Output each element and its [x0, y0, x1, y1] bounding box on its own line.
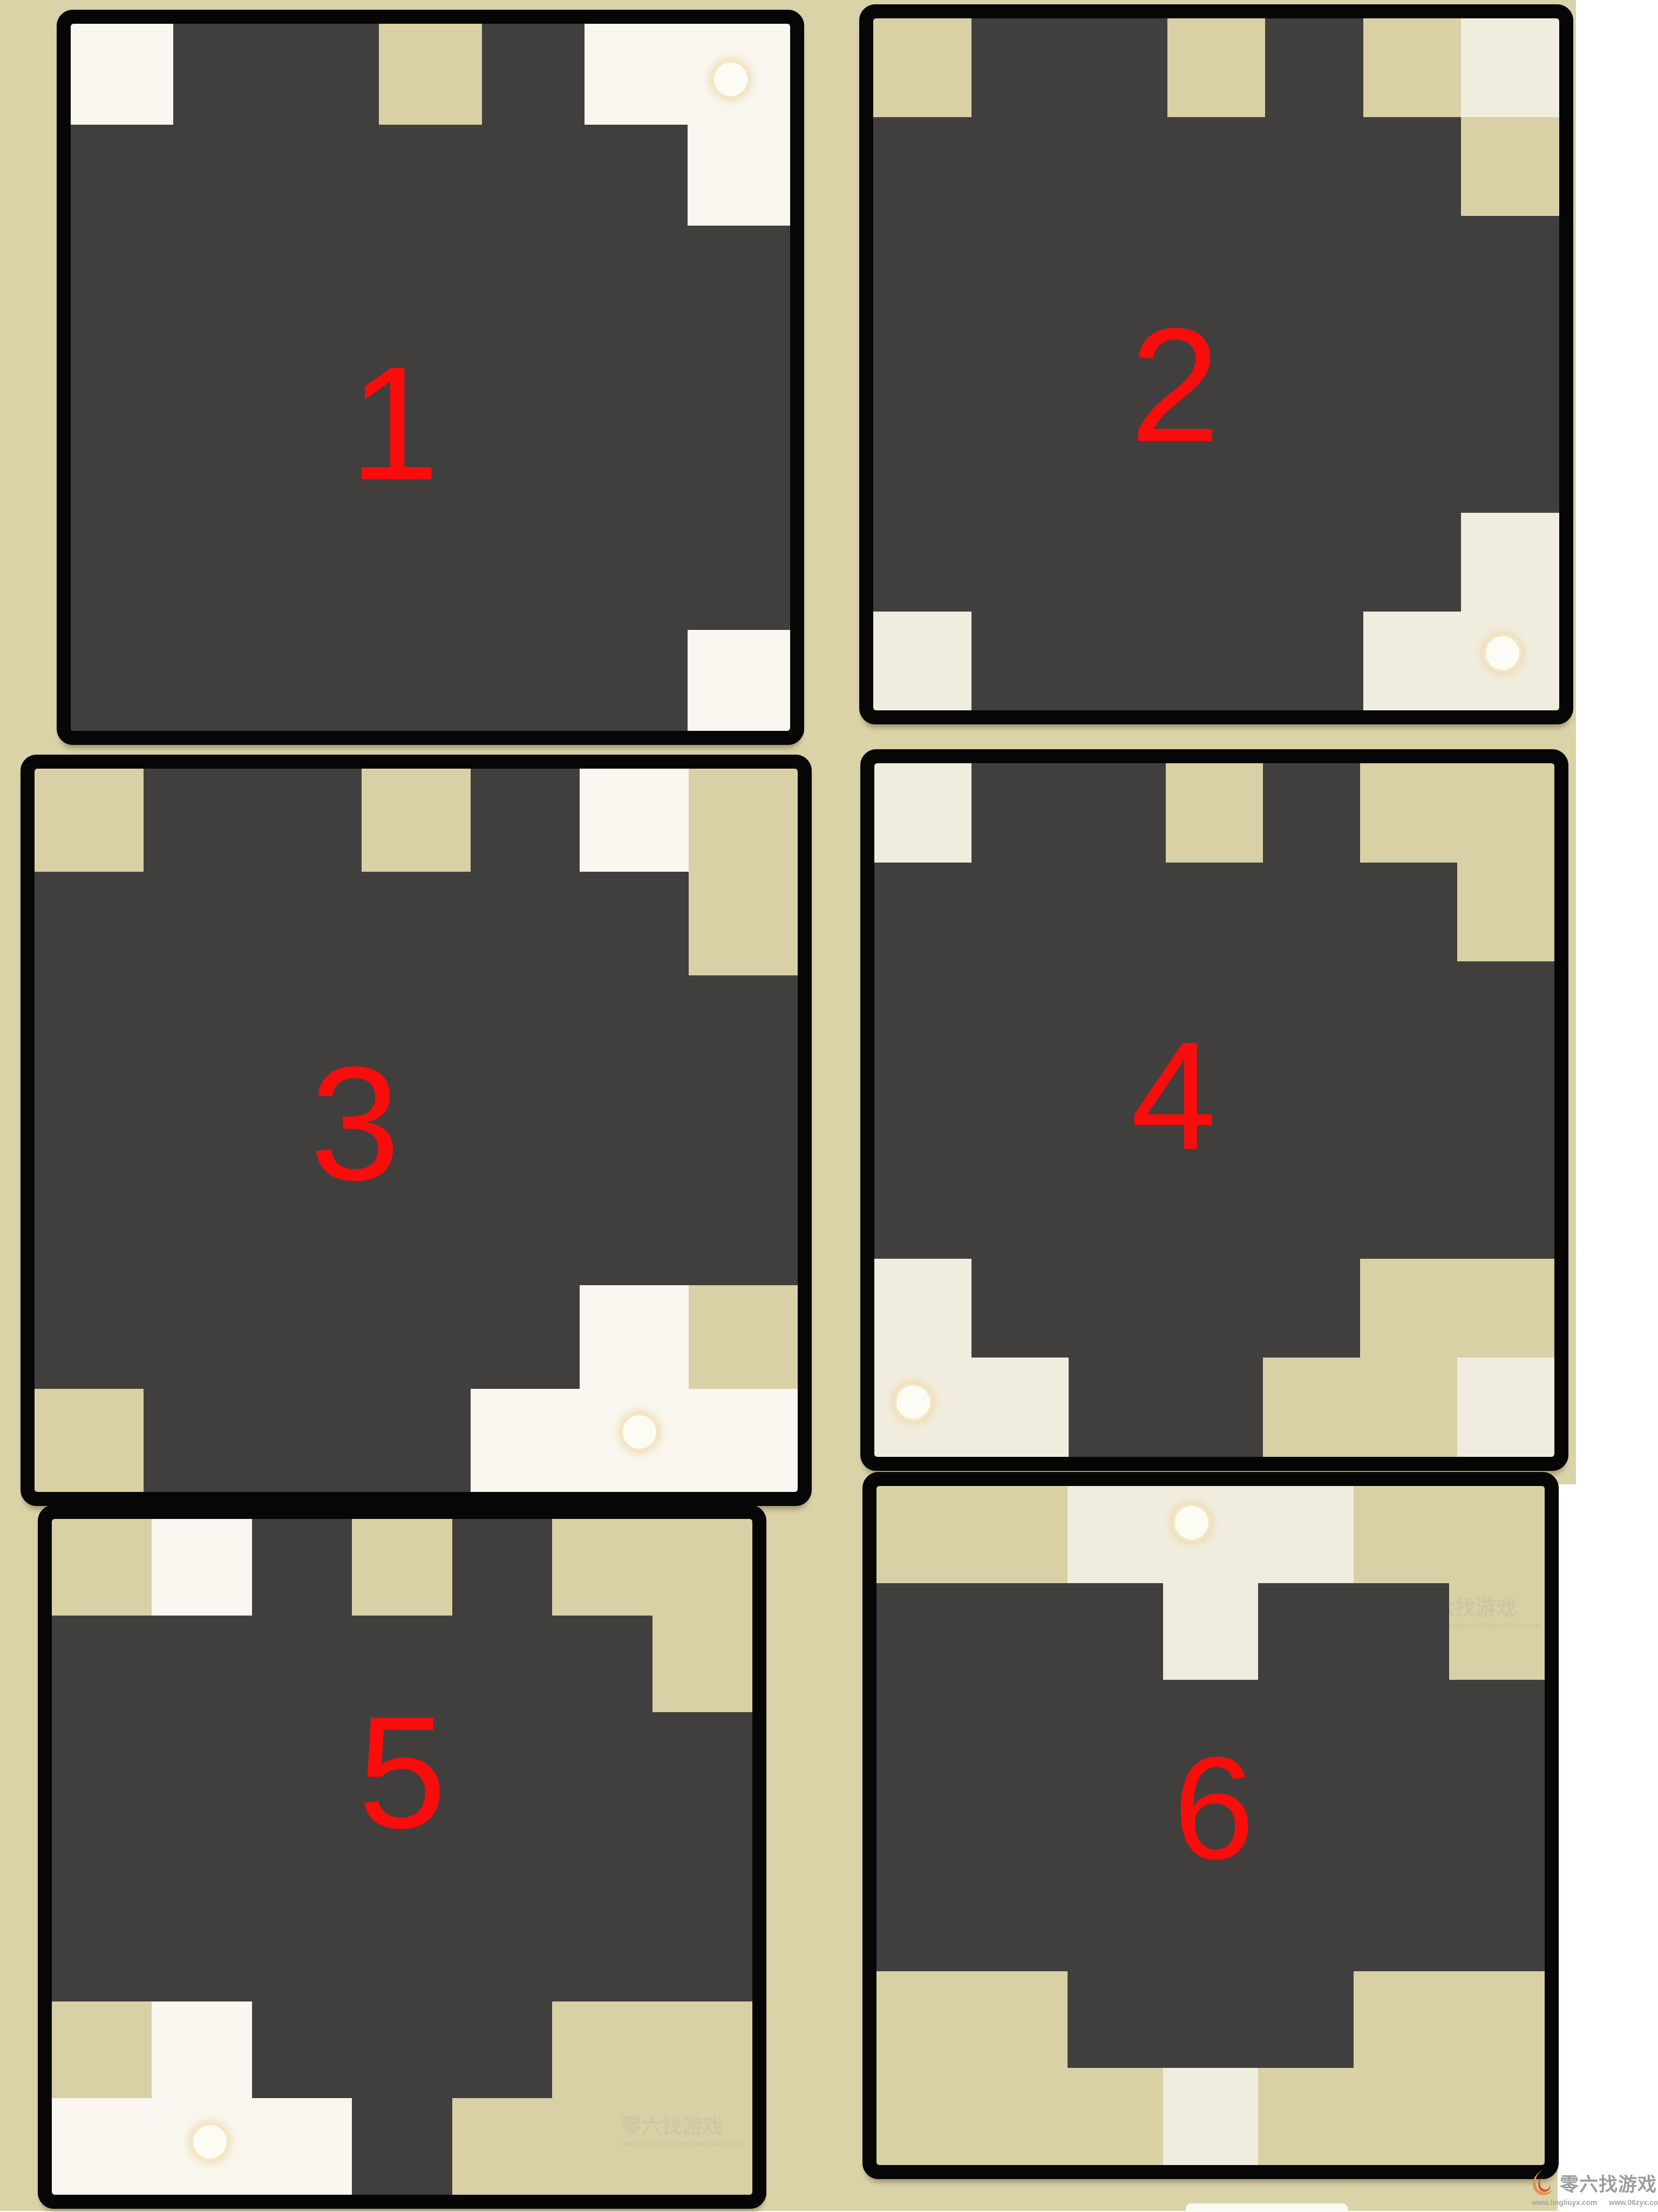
- map-block: [379, 24, 481, 125]
- panel-number: 1: [349, 342, 439, 504]
- map-block: [1363, 18, 1462, 117]
- map-block: [71, 24, 173, 125]
- map-block: [1163, 1583, 1259, 1680]
- panel-number: 5: [358, 1693, 446, 1852]
- watermark-url-1: www.lingliuyx.com: [1532, 2199, 1597, 2207]
- spawn-circle: [1172, 1503, 1211, 1542]
- watermark: 零六找游戏 www.lingliuyx.com www.06zyx.com: [1528, 2168, 1658, 2211]
- map-block: [1258, 2068, 1545, 2165]
- map-panel-inner: 2: [873, 18, 1559, 710]
- map-panel-inner: 4: [874, 763, 1554, 1457]
- map-block: [689, 769, 798, 975]
- map-panel-inner: 1: [71, 24, 790, 731]
- map-block: [352, 1519, 452, 1616]
- map-block: [585, 24, 790, 125]
- map-block: [1457, 863, 1554, 962]
- spawn-circle: [711, 60, 750, 99]
- map-panel-3: 3: [21, 755, 812, 1506]
- map-block: [362, 769, 471, 872]
- map-block: [552, 1519, 752, 1616]
- map-block: [688, 125, 790, 226]
- map-block: [1461, 18, 1559, 117]
- right-white-band-lower: [1558, 1484, 1579, 2211]
- map-block: [580, 1285, 689, 1388]
- map-panel-4: 4: [860, 749, 1568, 1471]
- map-block: [1461, 117, 1559, 216]
- map-block: [1354, 1486, 1545, 1583]
- map-block: [876, 1486, 1068, 1583]
- map-block: [152, 2001, 252, 2098]
- panel-number: 3: [310, 1042, 400, 1204]
- map-block: [35, 1389, 144, 1492]
- map-block: [552, 2001, 752, 2098]
- right-white-band: [1576, 0, 1658, 2211]
- map-block: [688, 630, 790, 731]
- map-panel-inner: 6: [876, 1486, 1545, 2165]
- map-block: [971, 1358, 1069, 1457]
- map-block: [873, 612, 971, 710]
- map-block: [653, 1616, 752, 1712]
- spawn-circle: [1483, 634, 1522, 673]
- watermark-title: 零六找游戏: [1560, 2169, 1657, 2197]
- map-block: [35, 769, 144, 872]
- panel-number: 4: [1131, 1019, 1217, 1173]
- map-panel-inner: 5: [52, 1519, 752, 2195]
- guide-image: 123456 零六找游戏 www.lingliuyx.com www.06zyx…: [0, 0, 1658, 2211]
- map-block: [1360, 1259, 1554, 1358]
- map-panel-6: 6: [862, 1472, 1559, 2179]
- map-block: [1461, 513, 1559, 710]
- map-block: [580, 769, 689, 872]
- map-block: [1457, 1358, 1554, 1457]
- map-block: [876, 2068, 1163, 2165]
- map-block: [1449, 1583, 1545, 1680]
- map-block: [1263, 1358, 1457, 1457]
- map-block: [689, 1285, 798, 1388]
- panel-number: 6: [1173, 1736, 1254, 1882]
- map-block: [1167, 18, 1266, 117]
- map-block: [1360, 763, 1554, 863]
- map-block: [52, 1519, 152, 1616]
- map-panel-inner: 3: [35, 769, 798, 1492]
- map-block: [876, 1971, 1068, 2068]
- map-block: [874, 763, 971, 863]
- map-block: [152, 1519, 252, 1616]
- map-block: [873, 18, 971, 117]
- map-panel-2: 2: [859, 4, 1573, 724]
- spawn-circle: [191, 2122, 229, 2161]
- map-block: [1068, 1486, 1354, 1583]
- map-block: [1363, 612, 1462, 710]
- map-block: [452, 2098, 752, 2195]
- flame-swirl-logo-icon: [1528, 2168, 1559, 2198]
- watermark-url-2: www.06zyx.com: [1609, 2199, 1658, 2207]
- map-block: [1166, 763, 1263, 863]
- spawn-circle: [894, 1383, 933, 1422]
- map-block: [1354, 1971, 1545, 2068]
- map-block: [874, 1259, 971, 1457]
- spawn-circle: [620, 1413, 659, 1451]
- panel-number: 2: [1130, 304, 1220, 466]
- map-panel-5: 5: [38, 1505, 766, 2209]
- map-block: [1163, 2068, 1259, 2165]
- map-block: [52, 2001, 152, 2098]
- map-panel-1: 1: [57, 10, 804, 745]
